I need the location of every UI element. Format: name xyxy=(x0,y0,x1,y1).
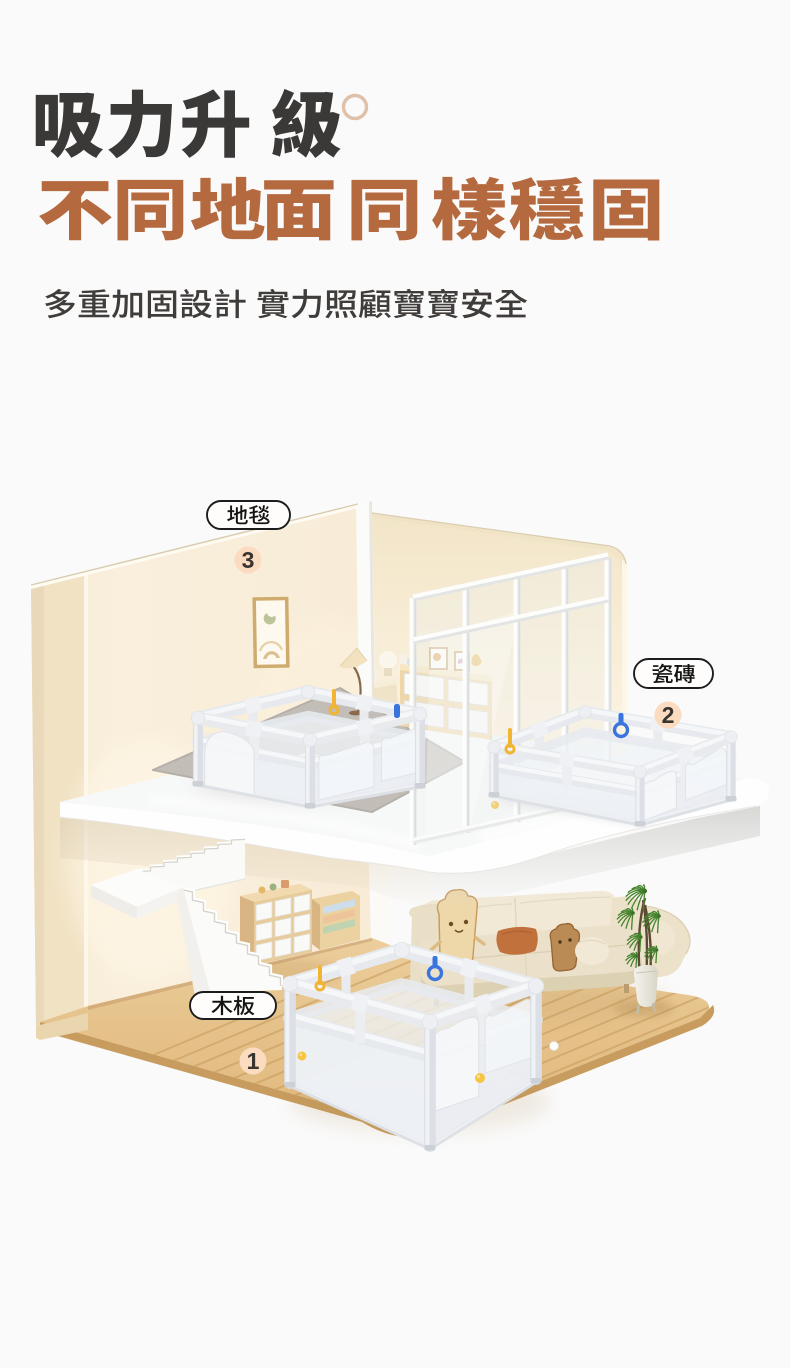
svg-text:1: 1 xyxy=(247,1048,260,1074)
svg-text:3: 3 xyxy=(242,547,255,573)
svg-text:2: 2 xyxy=(662,702,675,728)
